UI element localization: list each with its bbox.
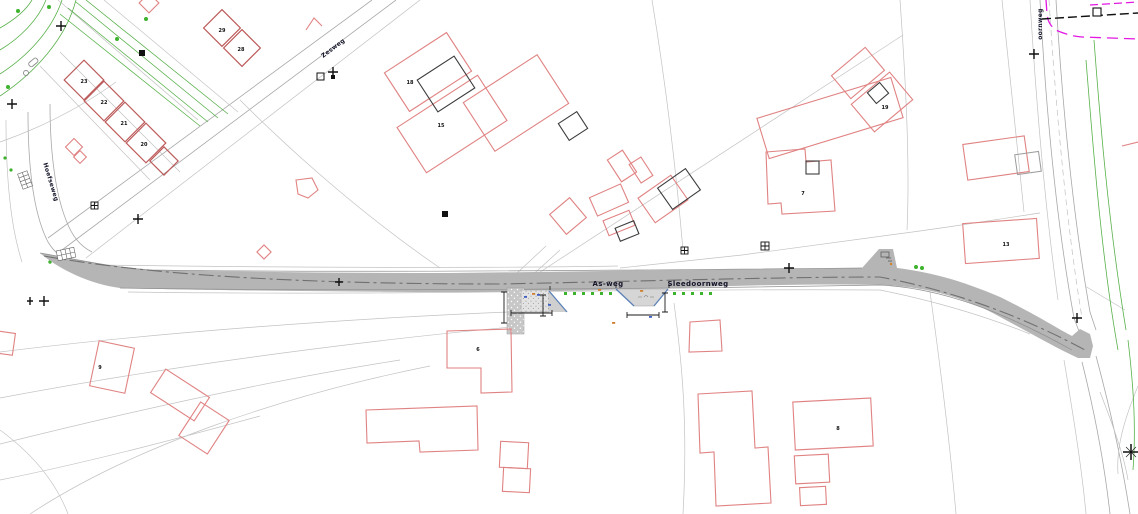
building-number: 19 bbox=[882, 105, 889, 111]
building-number: 9 bbox=[98, 365, 102, 371]
buildings-dark bbox=[417, 56, 888, 241]
building-number: 18 bbox=[407, 80, 414, 86]
building-number: 6 bbox=[476, 347, 480, 353]
building-number: 7 bbox=[801, 191, 805, 197]
site-plan-canvas: Zesweg Hoefseweg As-weg Sleedoornweg oor… bbox=[0, 0, 1138, 514]
parcel-lines bbox=[0, 0, 1138, 514]
building-number: 13 bbox=[1003, 242, 1010, 248]
building-number: 28 bbox=[238, 47, 245, 53]
hatched-crossings bbox=[18, 171, 76, 261]
street-label-hoefseweg: Hoefseweg bbox=[41, 162, 59, 202]
street-label-sleedoornweg: Sleedoornweg bbox=[667, 280, 728, 288]
utility-line-magenta bbox=[1046, 0, 1138, 39]
vegetation-hedges bbox=[0, 0, 1134, 470]
site-plan-viewport: Zesweg Hoefseweg As-weg Sleedoornweg oor… bbox=[0, 0, 1138, 514]
building-number: 8 bbox=[836, 426, 840, 432]
tree-dots bbox=[3, 5, 924, 276]
street-label-oornweg: oornweg bbox=[1037, 8, 1044, 39]
street-label-as-weg: As-weg bbox=[592, 280, 623, 288]
road-detail-works bbox=[501, 284, 712, 334]
building-number: 22 bbox=[101, 100, 108, 106]
building-number: 20 bbox=[141, 142, 148, 148]
building-number: 21 bbox=[121, 121, 128, 127]
building-number: 23 bbox=[81, 79, 88, 85]
point-markers bbox=[139, 50, 448, 217]
road-corridor bbox=[40, 249, 1093, 358]
street-labels: Zesweg Hoefseweg As-weg Sleedoornweg oor… bbox=[41, 8, 1044, 288]
benchmark-star bbox=[1123, 444, 1138, 460]
building-number: 15 bbox=[438, 123, 445, 129]
building-number: 29 bbox=[219, 28, 226, 34]
street-label-zesweg: Zesweg bbox=[320, 37, 346, 59]
grid-markers bbox=[91, 202, 769, 254]
